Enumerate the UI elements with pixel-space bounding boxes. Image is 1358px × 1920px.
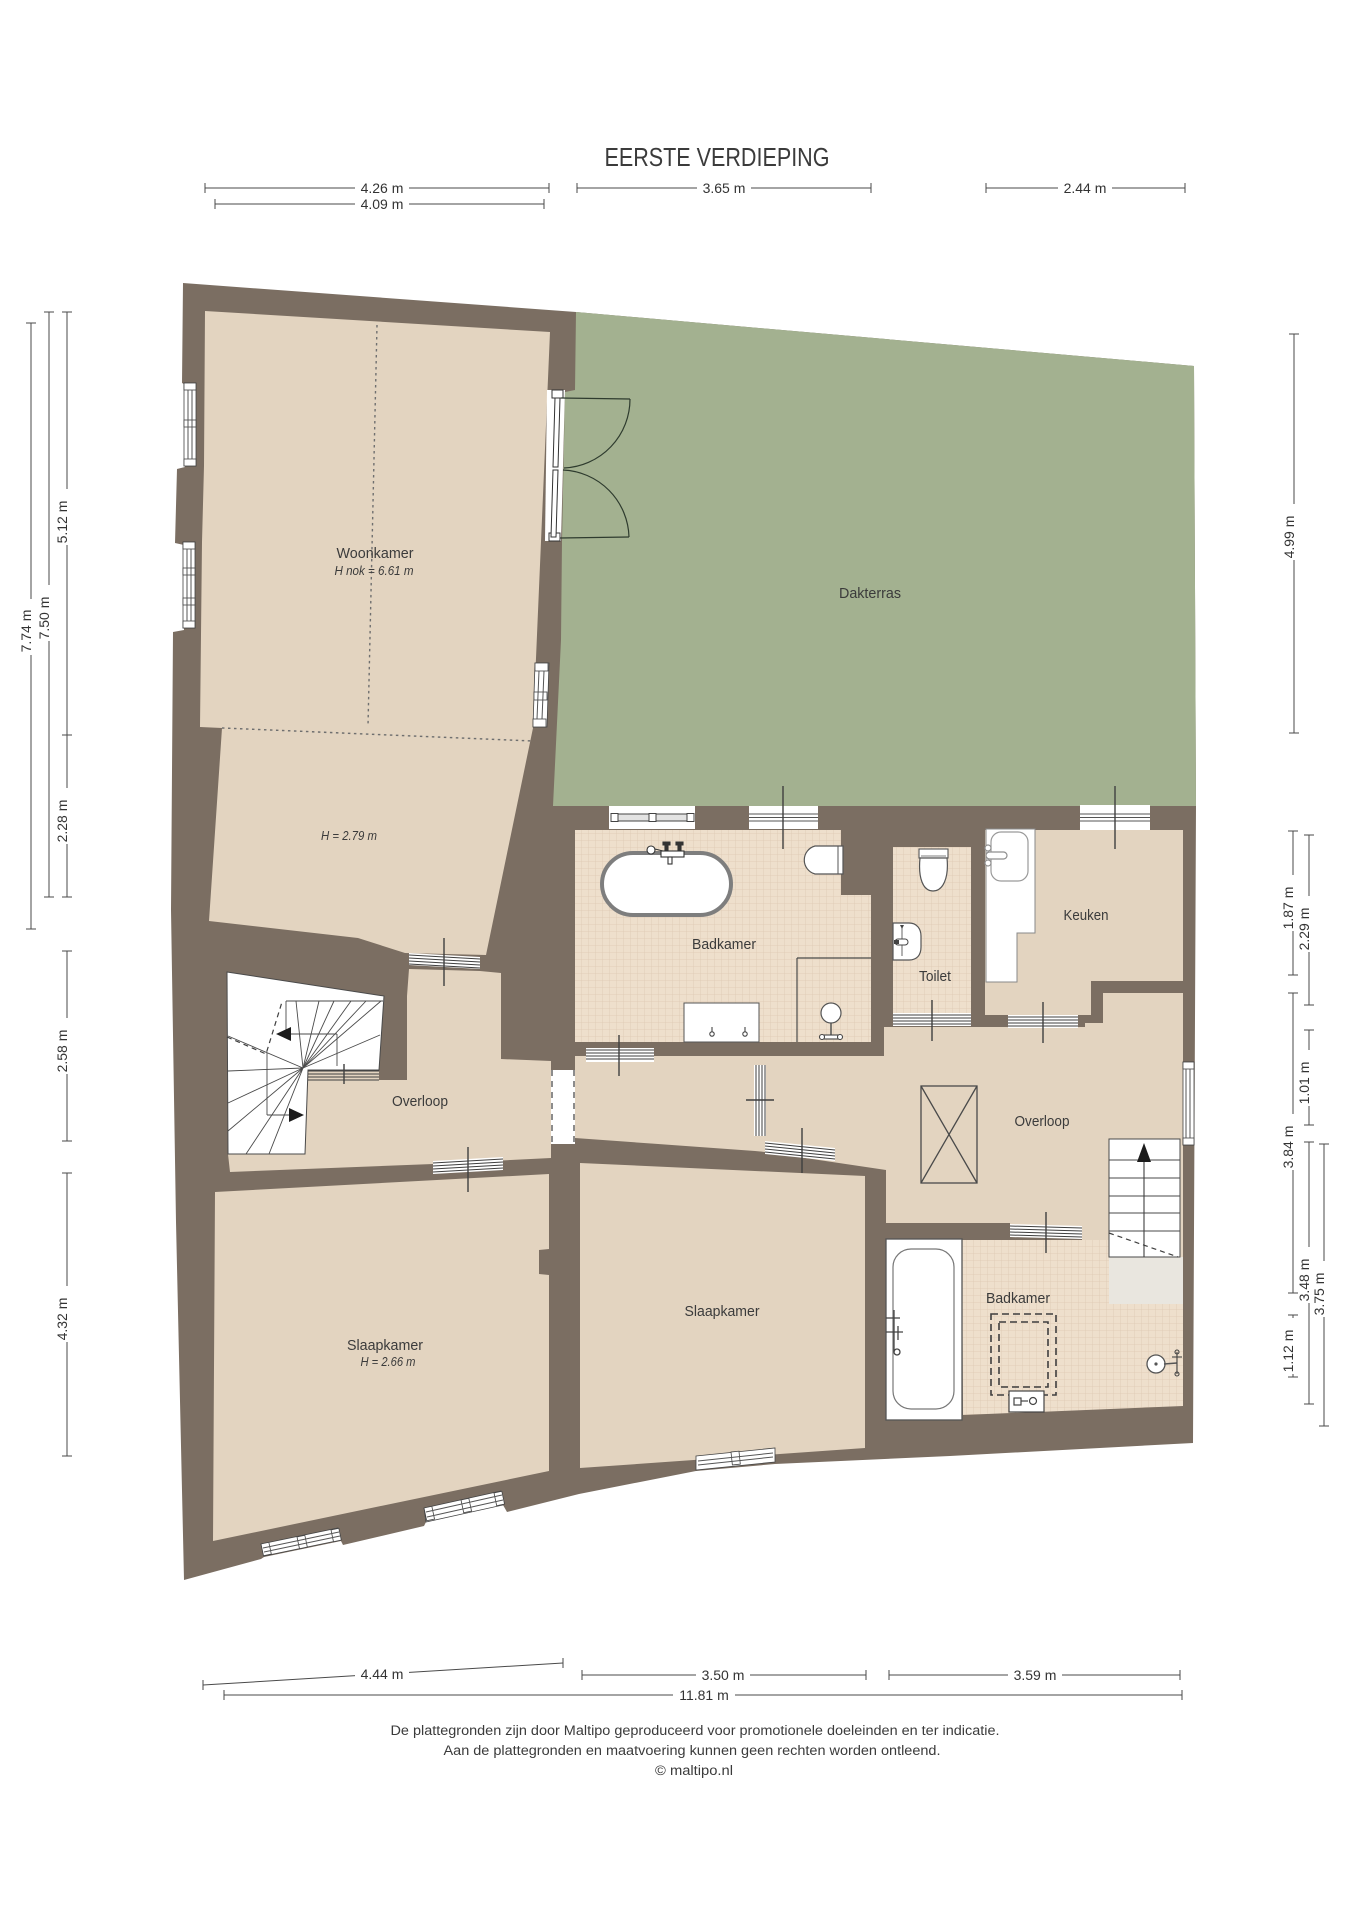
svg-text:Slaapkamer: Slaapkamer	[685, 1303, 760, 1320]
svg-text:EERSTE VERDIEPING: EERSTE VERDIEPING	[605, 144, 830, 172]
svg-text:Badkamer: Badkamer	[692, 936, 756, 953]
svg-text:Toilet: Toilet	[919, 968, 952, 985]
svg-text:H nok = 6.61 m: H nok = 6.61 m	[335, 564, 414, 578]
svg-text:4.09 m: 4.09 m	[361, 196, 404, 212]
svg-text:7.50 m: 7.50 m	[36, 597, 52, 640]
svg-text:1.12 m: 1.12 m	[1280, 1330, 1296, 1373]
svg-text:Overloop: Overloop	[1015, 1113, 1070, 1130]
svg-text:H = 2.79 m: H = 2.79 m	[321, 829, 377, 843]
svg-text:3.65 m: 3.65 m	[703, 180, 746, 196]
svg-text:Slaapkamer: Slaapkamer	[347, 1337, 423, 1354]
svg-text:7.74 m: 7.74 m	[18, 610, 34, 653]
svg-text:Badkamer: Badkamer	[986, 1290, 1050, 1307]
svg-text:3.84 m: 3.84 m	[1280, 1126, 1296, 1169]
svg-text:Woonkamer: Woonkamer	[337, 545, 414, 562]
svg-text:4.26 m: 4.26 m	[361, 180, 404, 196]
svg-text:1.87 m: 1.87 m	[1280, 887, 1296, 930]
svg-text:2.44 m: 2.44 m	[1064, 180, 1107, 196]
svg-text:4.32 m: 4.32 m	[54, 1298, 70, 1341]
svg-text:5.12 m: 5.12 m	[54, 501, 70, 544]
svg-text:11.81 m: 11.81 m	[679, 1687, 729, 1703]
svg-text:De plattegronden zijn door Mal: De plattegronden zijn door Maltipo gepro…	[391, 1723, 1000, 1739]
svg-text:2.29 m: 2.29 m	[1296, 908, 1312, 951]
svg-text:2.58 m: 2.58 m	[54, 1030, 70, 1073]
svg-text:3.50 m: 3.50 m	[702, 1667, 745, 1683]
svg-text:4.99 m: 4.99 m	[1281, 516, 1297, 559]
svg-text:3.59 m: 3.59 m	[1014, 1667, 1057, 1683]
svg-text:3.48 m: 3.48 m	[1296, 1259, 1312, 1302]
svg-text:Aan de plattegronden en maatvo: Aan de plattegronden en maatvoering kunn…	[444, 1743, 941, 1759]
svg-text:H = 2.66 m: H = 2.66 m	[361, 1355, 416, 1369]
svg-text:© maltipo.nl: © maltipo.nl	[655, 1763, 733, 1779]
svg-text:4.44 m: 4.44 m	[361, 1666, 404, 1682]
svg-text:Keuken: Keuken	[1064, 907, 1109, 924]
svg-text:3.75 m: 3.75 m	[1311, 1273, 1327, 1316]
svg-text:2.28 m: 2.28 m	[54, 800, 70, 843]
svg-text:1.01 m: 1.01 m	[1296, 1062, 1312, 1105]
svg-text:Dakterras: Dakterras	[839, 585, 901, 602]
svg-text:Overloop: Overloop	[392, 1093, 448, 1110]
